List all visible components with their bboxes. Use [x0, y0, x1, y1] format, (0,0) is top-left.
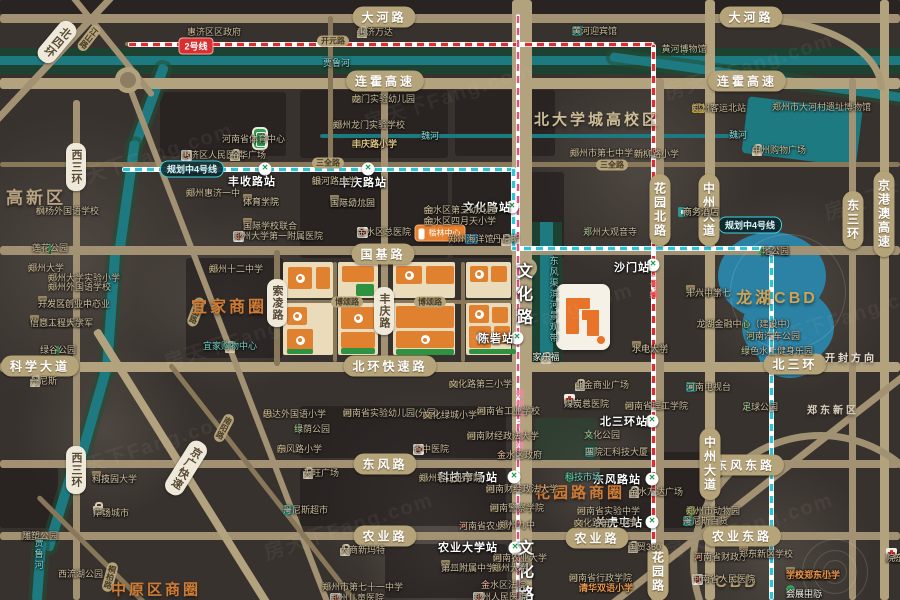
district-label: 宜家商圈: [191, 293, 267, 317]
road-label: 科学大道: [1, 356, 79, 377]
poi-label: 丹尼斯超市: [283, 505, 328, 516]
poi-label: 河南省人民医院: [692, 574, 755, 585]
poi-label: 枫杨外国语学校: [36, 206, 99, 217]
poi-label: 金水区法院: [481, 580, 526, 591]
poi-label: 郑州十二中学: [209, 264, 263, 275]
metro-station-label: 沙门站: [614, 259, 650, 275]
poi-label: 郑州人民医院: [473, 592, 527, 600]
road-label: 北环快速路: [343, 356, 436, 377]
poi-label: 惠济区区政府: [187, 27, 241, 38]
road-label: 花园北路: [650, 174, 671, 246]
road-label: 三全路: [596, 160, 628, 171]
poi-label: 郑州大观音寺: [583, 227, 637, 238]
poi-label: 金水区总医院: [357, 227, 411, 238]
poi-label: 郑州轻工业学院: [419, 473, 482, 484]
poi-label: 河南财经政法大学: [467, 431, 539, 442]
road-label: 丰庆路: [374, 287, 394, 335]
building: [316, 267, 330, 289]
poi-label: 金水区第三幼儿园: [424, 205, 496, 216]
metro-station-label: 农业大学站: [438, 539, 498, 555]
metro-station-label: 北三环站: [600, 413, 648, 429]
metro-line-label: 规划中7号线: [514, 390, 527, 451]
building: [426, 266, 454, 284]
poi-label: 四院汇科技大厦: [585, 447, 648, 458]
green-strip: [396, 349, 454, 355]
road-label: 大河路: [719, 7, 782, 28]
poi-label: 河南省理工学院: [625, 401, 688, 412]
road-label: 博颂路: [331, 297, 363, 308]
city-block: [0, 462, 58, 528]
road-label: 中州大道: [700, 428, 721, 500]
district-label: 北大学城高校区: [534, 109, 660, 130]
building: [491, 266, 507, 282]
poi-label: 思达外国语小学: [263, 409, 326, 420]
poi-label: 贾鲁河: [33, 538, 44, 571]
poi-label: 郑州市第七十一中学: [322, 582, 403, 593]
road-label: 农业路: [565, 528, 628, 549]
poi-label: 足球公园: [742, 402, 778, 413]
poi-label: 贾鲁河: [323, 58, 350, 69]
building-logo: [475, 270, 484, 279]
poi-label: 莲花公园: [32, 243, 68, 254]
building-logo: [296, 274, 305, 283]
building-logo: [354, 314, 363, 323]
city-map[interactable]: 楷林中心2号线2号线规划中4号线规划中4号线规划中7号线×丰收路站×丰庆路站×文…: [0, 0, 900, 600]
poi-label: 国贸360: [628, 542, 661, 553]
building: [341, 332, 375, 348]
poi-label: 丹尼斯: [493, 234, 520, 245]
building-logo: [296, 336, 305, 345]
district-label: 中原区商圈: [111, 579, 201, 600]
building: [356, 284, 374, 296]
poi-label: 黄河博物馆: [662, 44, 707, 55]
poi-label: 河南省工业学校: [477, 406, 540, 417]
poi-label: 金水区政府: [497, 450, 542, 461]
poi-label: 新柳路小学: [634, 149, 679, 160]
poi-label: 省中医院: [413, 444, 449, 455]
building: [288, 267, 312, 289]
poi-label: 郑州市第七中学: [570, 148, 633, 159]
metro-line-label: 规划中4号线: [160, 161, 224, 178]
poi-label: 河南警察学院: [490, 503, 544, 514]
poi-label: 北金商业广场: [575, 380, 629, 391]
green-strip: [287, 349, 313, 354]
poi-label: 中州购物广场: [752, 145, 806, 156]
road-label: 北三环: [763, 354, 826, 375]
building: [396, 306, 454, 328]
poi-label: 裕华广场: [230, 150, 266, 161]
poi-label: 郑州惠济一中: [186, 188, 240, 199]
poi-label: 科技市场: [565, 472, 601, 483]
district-label: 郑东新区: [807, 402, 859, 417]
metro-line-label: 规划中4号线: [718, 217, 782, 234]
poi-label: 魏河: [729, 130, 747, 141]
metro-line-label: 2号线: [178, 38, 213, 55]
poi-label: 绿荫公园: [294, 424, 330, 435]
district-label: 开封方向: [825, 350, 877, 365]
poi-label: 河南财经政法大学: [486, 484, 558, 495]
poi-label: 东风路小学: [277, 444, 322, 455]
poi-label: 银河路小学: [312, 176, 357, 187]
building: [396, 266, 422, 284]
poi-label: 惠济万达: [357, 27, 393, 38]
poi-label: 文化公园: [584, 430, 620, 441]
poi-label: 郑州大学: [492, 563, 528, 574]
poi-label: 天旺广场: [303, 468, 339, 479]
poi-label: 郑州儿童医院: [330, 593, 384, 600]
metro-station-label: 丰收路站: [228, 173, 276, 189]
road-label: 东风路: [353, 454, 416, 475]
road-label: 三全路: [312, 158, 344, 169]
district-label: 龙湖CBD: [736, 284, 818, 308]
road-label: 博颂路: [414, 297, 446, 308]
road-label: 连霍高速: [346, 71, 424, 92]
building-logo: [405, 271, 414, 280]
poi-label: 文化路第三小学: [449, 379, 512, 390]
poi-label: 丹尼斯: [30, 376, 57, 387]
poi-label: 郑州九中: [499, 520, 535, 531]
poi-label: 大商新玛特: [340, 545, 385, 556]
poi-label: 金水万达广场: [629, 487, 683, 498]
poi-label: 家乐福: [533, 352, 560, 363]
building: [470, 266, 488, 282]
metro-station-icon: ×: [646, 473, 659, 486]
poi-label: 郑州大学第一附属医院: [233, 231, 323, 242]
green-strip: [341, 348, 375, 354]
poi-label: 魏河: [421, 131, 439, 142]
road-label: 国基路: [351, 244, 414, 265]
building: [396, 331, 454, 348]
building-logo: [475, 310, 484, 319]
poi-label: 郑州海洋馆: [449, 234, 494, 245]
poi-label: 文化路第一小学: [574, 518, 637, 529]
road-label: 开元路: [317, 36, 349, 47]
poi-label: 西流湖公园: [58, 569, 103, 580]
poi-label: 丰庆路小学: [352, 139, 397, 150]
metro-line4: [511, 246, 773, 251]
poi-label: 绿谷公园: [40, 345, 76, 356]
poi-label: 郑州市大河村遗址博物馆: [772, 102, 871, 113]
poi-label: 黄河迎宾馆: [572, 26, 617, 37]
building: [341, 307, 375, 329]
poi-label: 郑州外国语学校: [48, 282, 111, 293]
building: [342, 266, 374, 282]
poi-label: 金水区四月天小学: [424, 216, 496, 227]
metro-station-icon: ×: [508, 471, 521, 484]
roundabout: [115, 67, 141, 93]
metro-station-icon: ×: [646, 516, 659, 529]
road-label: 大河路: [352, 7, 415, 28]
poi-label: 清华双语小学: [579, 583, 633, 594]
poi-label: 文化绿城小学: [423, 410, 477, 421]
poi-label: 河南电视台: [686, 382, 731, 393]
building-logo: [421, 335, 430, 344]
poi-label: 郑州客运北站: [692, 103, 746, 114]
poi-label: 河南省实验中学: [577, 506, 640, 517]
road: [461, 262, 465, 362]
